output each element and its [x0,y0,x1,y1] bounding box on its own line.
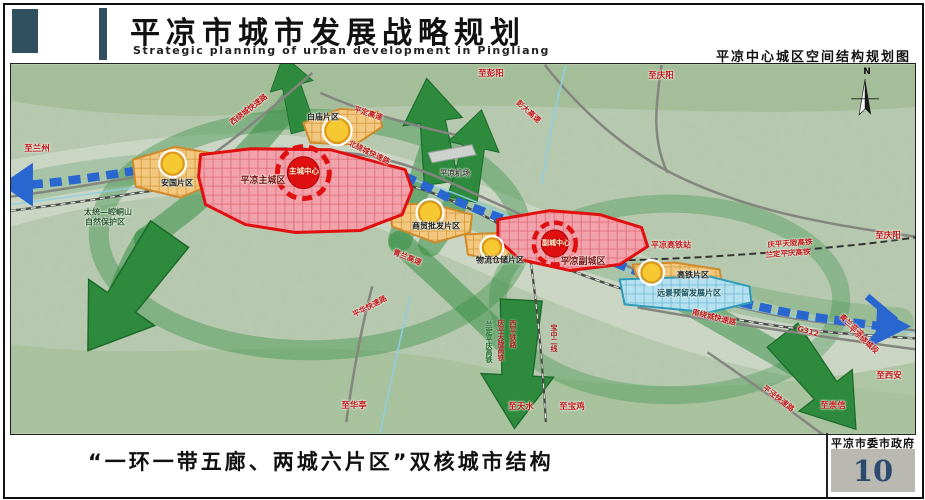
label-to-baoji: 至宝鸡 [559,403,585,413]
label-zone-yuanjing: 远景预留发展片区 [657,288,721,297]
label-rail-qingping-vertical: 庆平天陇高铁 [496,319,506,361]
label-nature-reserve-2: 自然保护区 [85,217,125,226]
page-subtitle-english: Strategic planning of urban development … [133,44,550,57]
label-sub-center: 副城中心 [542,239,570,247]
label-hsr-station: 平凉高铁站 [651,240,691,249]
label-rail-landing-vertical: 兰定平庆高铁 [484,321,494,363]
page-number: 10 [853,454,893,488]
label-to-huating: 至华亭 [341,402,367,412]
label-airport: 平凉机场 [440,170,470,179]
label-zone-sub-city: 平凉副城区 [560,257,605,267]
label-rail-xiping: 西平铁路 [508,320,518,348]
label-to-qingyang-east: 至庆阳 [875,232,901,242]
label-zone-shangmao: 商贸批发片区 [412,221,460,230]
compass-north-label: N [863,67,871,77]
label-to-pengyang: 至彭阳 [478,70,504,80]
label-zone-gaotie: 高铁片区 [677,270,709,279]
label-zone-main-city: 平凉主城区 [240,176,285,186]
label-to-xian: 至西安 [876,372,902,382]
header-accent-square [12,9,38,53]
label-to-lanzhou: 至兰州 [24,145,50,155]
label-zone-anguo: 安国片区 [161,178,193,187]
label-rail-baozhong: 宝中二线 [549,324,559,352]
label-zone-wuliu: 物流仓储片区 [476,255,524,264]
label-to-qingyang-north: 至庆阳 [648,72,674,82]
label-zone-baimiao: 白庙片区 [307,112,339,121]
label-nature-reserve-1: 太统—崆峒山 [84,207,132,216]
label-to-chongxin: 至崇信 [820,402,846,412]
page-number-box: 10 [831,449,915,492]
structure-caption: “一环一带五廊、两城六片区”双核城市结构 [88,446,554,476]
header-accent-bar [99,8,107,60]
label-to-tianshui: 至天水 [508,403,534,413]
label-main-center: 主城中心 [289,168,319,177]
planning-map: 白庙片区 安国片区 平凉主城区 主城中心 商贸批发片区 物流仓储片区 平凉副城区… [10,63,916,435]
planning-slide: 平凉市城市发展战略规划 Strategic planning of urban … [0,0,925,500]
